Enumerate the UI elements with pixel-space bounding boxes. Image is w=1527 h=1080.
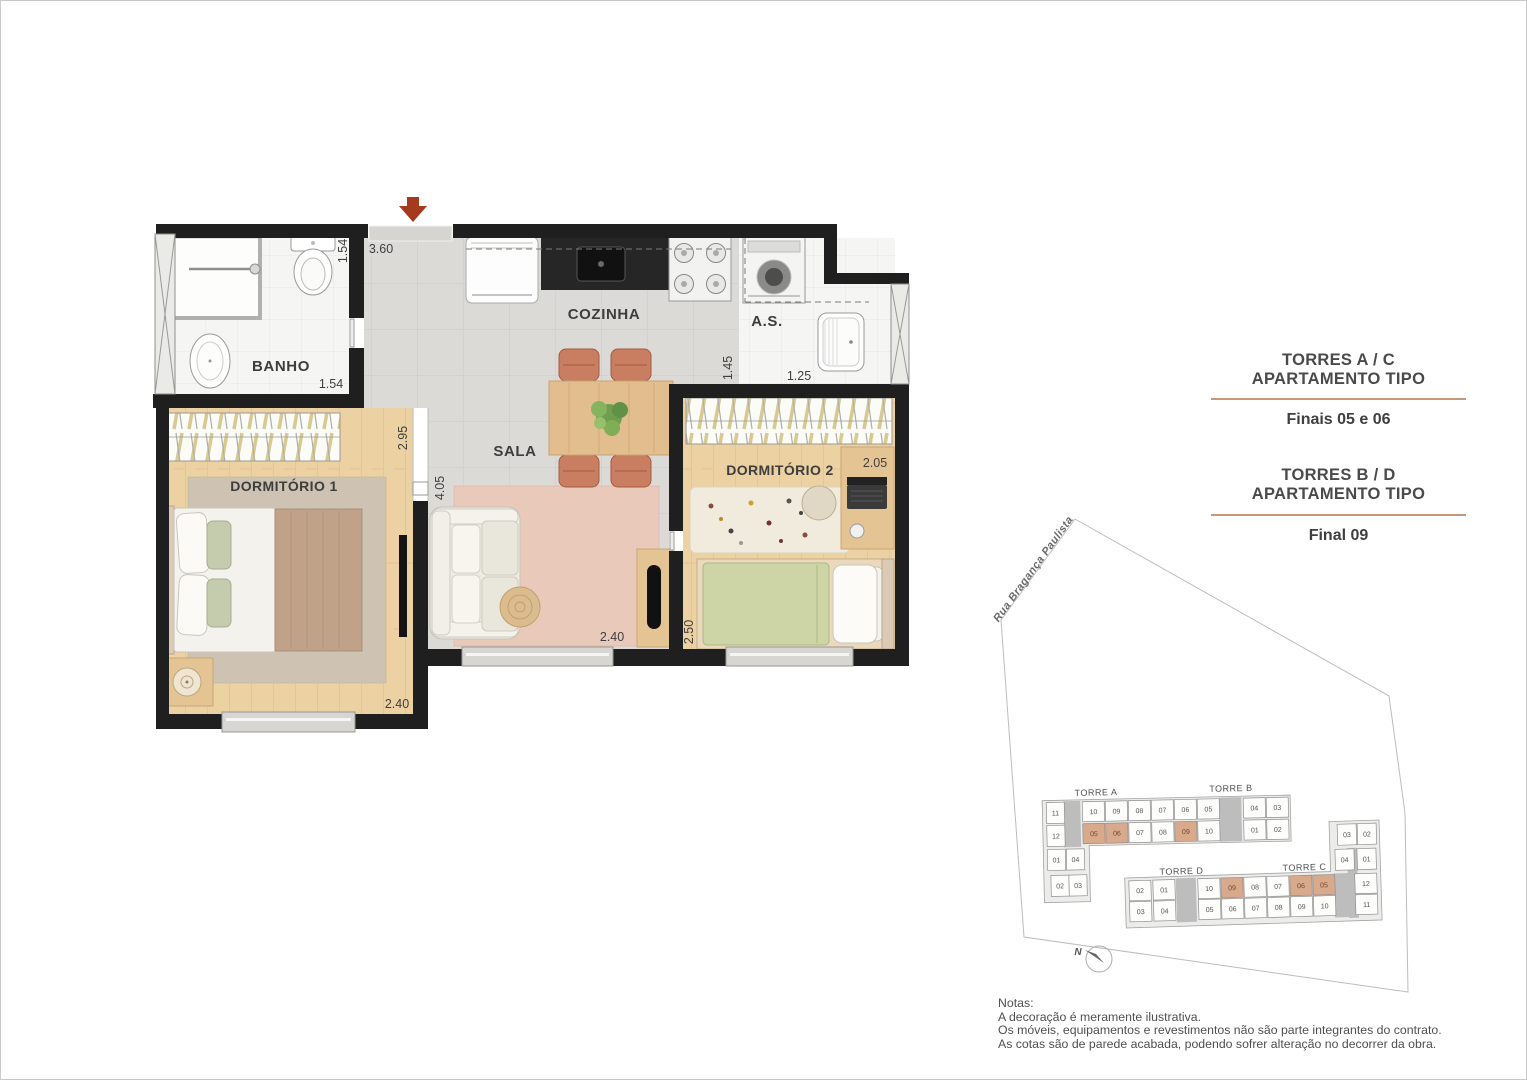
- panel-title-bd-line1: TORRES B / D: [1281, 466, 1395, 484]
- unit-number: 01: [1363, 856, 1371, 863]
- panel-title-ac-line1: TORRES A / C: [1282, 351, 1395, 369]
- entrance-door: [369, 226, 452, 241]
- unit-number: 01: [1053, 857, 1061, 864]
- panel-title-ac-line2: APARTAMENTO TIPO: [1252, 370, 1425, 388]
- double-bed: [161, 506, 363, 654]
- dorm1-dim-v: 2.95: [396, 426, 410, 450]
- laundry-tank: [818, 313, 864, 371]
- banho-label: BANHO: [252, 358, 310, 375]
- desk-chair: [802, 486, 836, 520]
- unit-number: 05: [1090, 831, 1098, 838]
- panel-title-bd-line2: APARTAMENTO TIPO: [1252, 485, 1425, 503]
- entrance-arrow-icon: [399, 197, 427, 222]
- unit-number: 04: [1161, 908, 1169, 915]
- unit-number: 03: [1343, 832, 1351, 839]
- unit-number: 10: [1321, 903, 1329, 910]
- unit-number: 03: [1137, 909, 1145, 916]
- north-indicator: N: [1074, 946, 1112, 972]
- kitchen-counter: [541, 236, 669, 290]
- stove: [669, 237, 731, 301]
- dorm2-window: [726, 647, 853, 666]
- unit-number: 08: [1159, 829, 1167, 836]
- unit-number: 09: [1112, 809, 1120, 816]
- banho-door: [350, 319, 354, 347]
- notes-line: As cotas são de parede acabada, podendo …: [998, 1038, 1442, 1052]
- bathroom-sink: [190, 334, 230, 388]
- floorplan-svg: BANHO 1.54 1.54 3.60 COZINHA A.S. 1.45 1…: [141, 191, 921, 746]
- divider-line: [1211, 398, 1466, 400]
- unit-number: 01: [1160, 887, 1168, 894]
- unit-number: 04: [1250, 805, 1258, 812]
- unit-number: 06: [1181, 807, 1189, 814]
- unit-number: 10: [1205, 828, 1213, 835]
- unit-number: 02: [1363, 831, 1371, 838]
- unit-number: 02: [1274, 827, 1282, 834]
- notes-line: Os móveis, equipamentos e revestimentos …: [998, 1024, 1442, 1038]
- unit-number: 07: [1136, 830, 1144, 837]
- unit-number: 06: [1113, 831, 1121, 838]
- unit-number: 08: [1275, 905, 1283, 912]
- torre-d-label: TORRE D: [1159, 866, 1203, 877]
- washing-machine: [743, 237, 805, 303]
- fridge: [466, 237, 538, 303]
- single-bed: [697, 559, 894, 649]
- unit-number: 02: [1056, 883, 1064, 890]
- banho-dim-h: 1.54: [319, 377, 343, 391]
- unit-number: 05: [1204, 806, 1212, 813]
- unit-number: 12: [1362, 881, 1370, 888]
- dorm2-dim-v: 2.50: [682, 620, 696, 644]
- pouf: [500, 587, 540, 627]
- unit-number: 04: [1072, 857, 1080, 864]
- servico-window: [891, 284, 909, 384]
- sala-dim-w: 2.40: [600, 630, 624, 644]
- unit-number: 05: [1206, 907, 1214, 914]
- dorm1-label: DORMITÓRIO 1: [230, 477, 337, 494]
- banho-dim-v: 1.54: [336, 239, 350, 263]
- shower: [174, 238, 260, 318]
- unit-number: 01: [1251, 827, 1259, 834]
- dorm2-label: DORMITÓRIO 2: [726, 461, 833, 478]
- dorm1-dim-w: 2.40: [385, 697, 409, 711]
- panel-block-ac: TORRES A / C APARTAMENTO TIPO Finais 05 …: [1211, 351, 1466, 429]
- dorm2-dim-h: 2.05: [863, 456, 887, 470]
- panel-title-ac: TORRES A / C APARTAMENTO TIPO: [1211, 351, 1466, 389]
- dorm1-window: [222, 712, 355, 732]
- unit-number: 03: [1074, 883, 1082, 890]
- unit-number: 07: [1158, 807, 1166, 814]
- dorm1-wardrobe: [164, 413, 340, 461]
- dorm2-wardrobe: [686, 398, 892, 444]
- notes-line: A decoração é meramente ilustrativa.: [998, 1011, 1442, 1025]
- unit-number: 11: [1052, 810, 1060, 817]
- panel-subtitle-ac: Finais 05 e 06: [1211, 411, 1466, 429]
- sala-window: [462, 647, 613, 666]
- street-label: Rua Bragança Paulista: [991, 514, 1076, 624]
- panel-title-bd: TORRES B / D APARTAMENTO TIPO: [1211, 466, 1466, 504]
- unit-number: 12: [1052, 833, 1060, 840]
- cozinha-label: COZINHA: [568, 306, 641, 323]
- notes-heading: Notas:: [998, 997, 1442, 1011]
- unit-number: 09: [1182, 829, 1190, 836]
- dining-table: [549, 381, 673, 455]
- servico-dim-v: 1.45: [721, 356, 735, 380]
- page-canvas: BANHO 1.54 1.54 3.60 COZINHA A.S. 1.45 1…: [0, 0, 1527, 1080]
- servico-dim-h: 1.25: [787, 369, 811, 383]
- unit-number: 07: [1274, 884, 1282, 891]
- unit-number: 06: [1297, 883, 1305, 890]
- unit-number: 10: [1089, 809, 1097, 816]
- notes-block: Notas: A decoração é meramente ilustrati…: [998, 997, 1442, 1051]
- entry-dim: 3.60: [369, 242, 393, 256]
- banho-window: [155, 234, 175, 394]
- unit-number: 07: [1252, 905, 1260, 912]
- dorm1-tv: [399, 535, 407, 637]
- unit-number: 09: [1228, 885, 1236, 892]
- dorm1-door: [413, 482, 428, 495]
- torre-c-label: TORRE C: [1282, 862, 1326, 873]
- unit-number: 10: [1205, 886, 1213, 893]
- unit-number: 09: [1298, 904, 1306, 911]
- servico-label: A.S.: [751, 313, 783, 330]
- sala-dim-v: 4.05: [433, 476, 447, 500]
- toilet: [291, 236, 335, 295]
- torre-a-label: TORRE A: [1074, 787, 1117, 798]
- unit-number: 05: [1320, 882, 1328, 889]
- unit-number: 03: [1273, 805, 1281, 812]
- unit-number: 04: [1341, 857, 1349, 864]
- unit-number: 08: [1135, 808, 1143, 815]
- unit-number: 02: [1136, 888, 1144, 895]
- unit-number: 08: [1251, 884, 1259, 891]
- siteplan-svg: Rua Bragança Paulista TORRE A TORRE B 10…: [991, 506, 1526, 996]
- sala-label: SALA: [493, 443, 536, 460]
- unit-number: 11: [1363, 902, 1371, 909]
- north-label: N: [1074, 947, 1082, 958]
- torre-b-label: TORRE B: [1209, 783, 1253, 794]
- tv-rack-sala: [637, 549, 673, 647]
- unit-number: 06: [1229, 906, 1237, 913]
- dorm2-door: [670, 532, 674, 550]
